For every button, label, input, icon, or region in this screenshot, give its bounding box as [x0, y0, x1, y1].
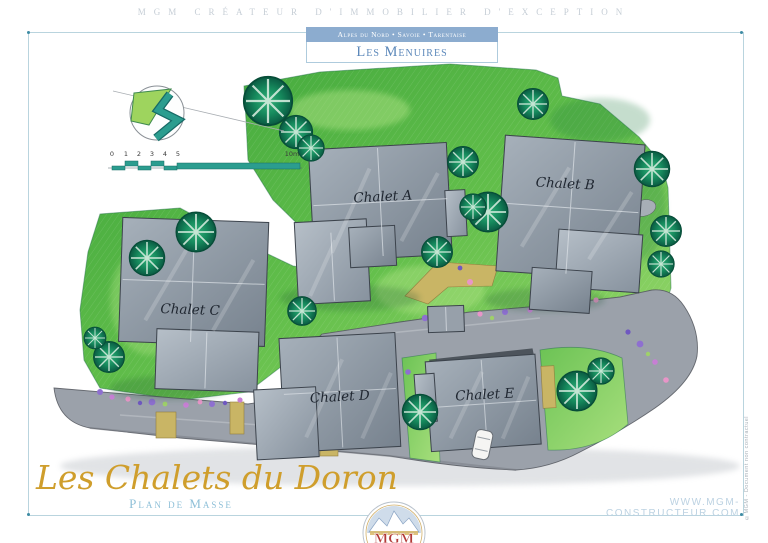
resort-label: Les Menuires: [306, 42, 498, 63]
chalet-a-label: Chalet A: [353, 187, 413, 206]
chalet-d-label: Chalet D: [309, 387, 370, 406]
mgm-logo-badge: MGM: [359, 498, 429, 543]
scale-tick: 4: [163, 150, 167, 158]
scale-tick: 3: [150, 150, 154, 158]
scale-tick: 5: [176, 150, 180, 158]
chalet-c-label: Chalet C: [160, 301, 221, 319]
chalet-b-label: Chalet B: [535, 174, 595, 193]
chalet-e-label: Chalet E: [455, 385, 515, 404]
scale-max-label: 10m: [285, 150, 300, 158]
outbuilding-roof: [428, 305, 465, 332]
scale-tick: 0: [110, 150, 114, 158]
website-url: WWW.MGM-CONSTRUCTEUR.COM: [540, 497, 740, 519]
project-title: Les Chalets du Doron: [36, 460, 326, 496]
plan-subtitle: Plan de Masse: [36, 496, 326, 512]
logo-text: MGM: [374, 531, 414, 543]
region-label: Alpes du Nord • Savoie • Tarentaise: [306, 27, 498, 42]
scale-tick: 1: [124, 150, 128, 158]
scale-tick: 2: [137, 150, 141, 158]
location-banner: Alpes du Nord • Savoie • Tarentaise Les …: [306, 27, 498, 63]
title-block: Les Chalets du Doron Plan de Masse: [36, 460, 326, 512]
mgm-logo: MGM: [359, 498, 429, 543]
